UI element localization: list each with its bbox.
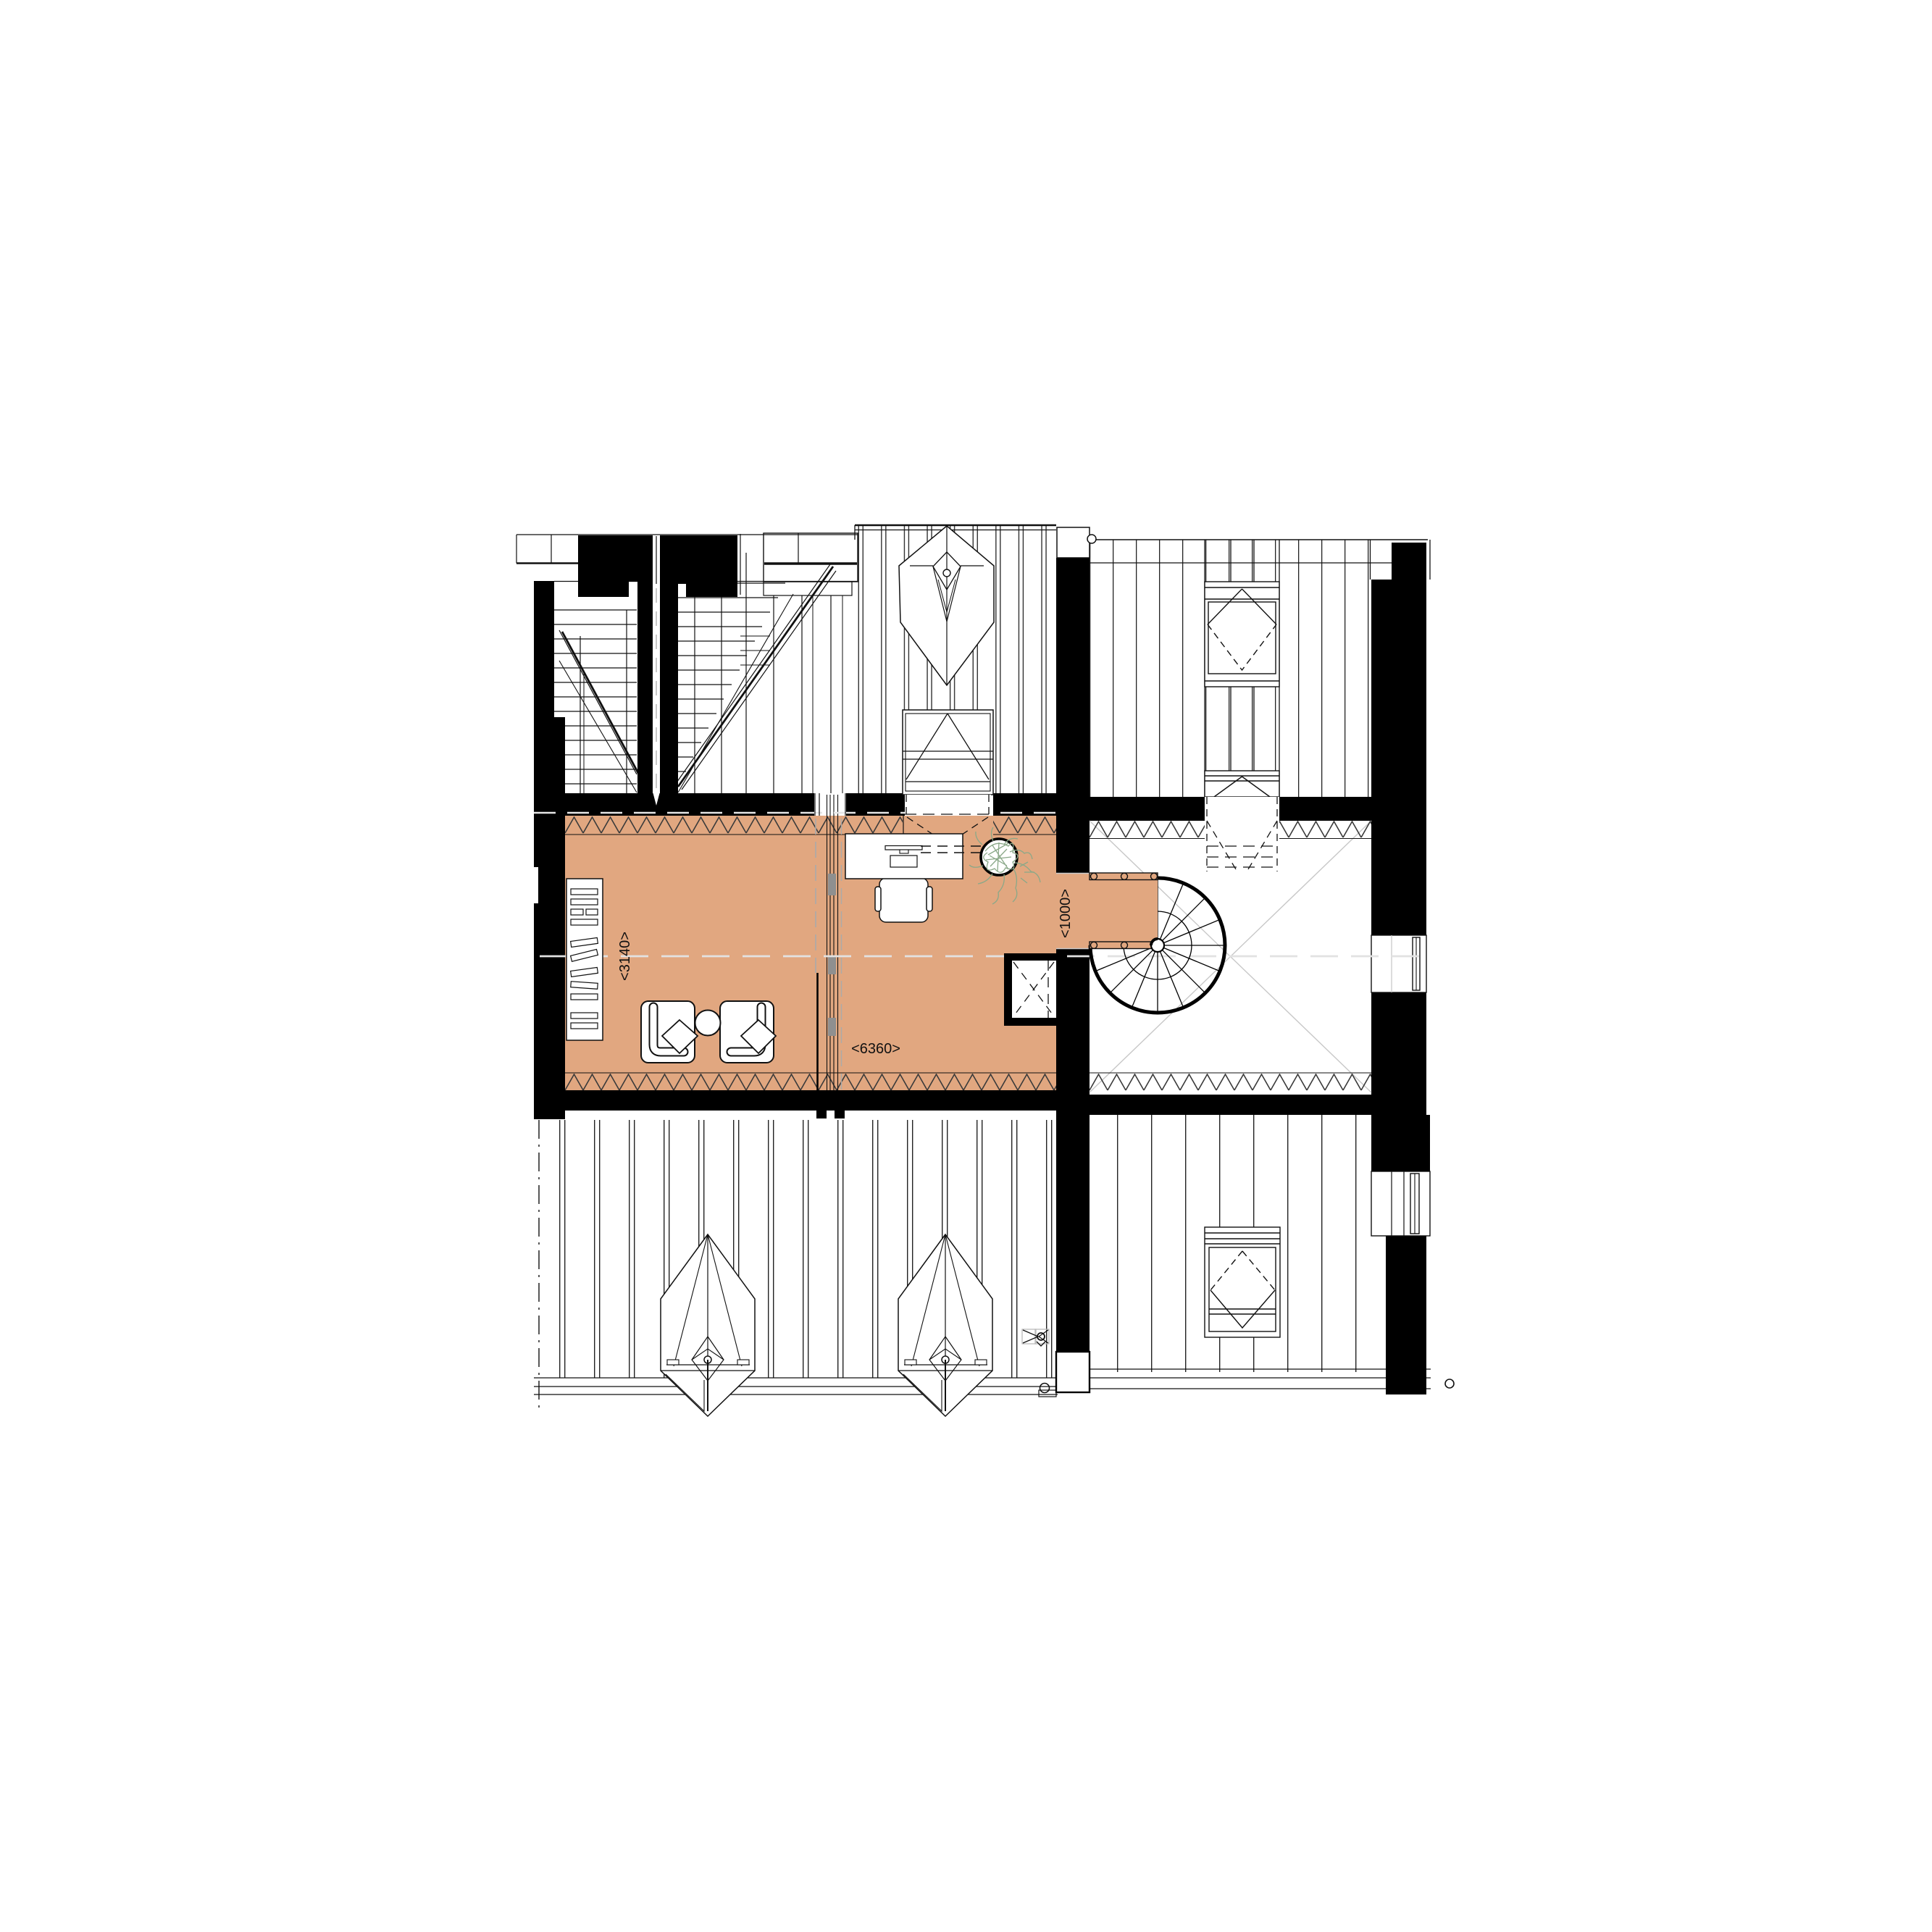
svg-text:<3140>: <3140> [617, 932, 633, 981]
svg-text:<6360>: <6360> [851, 1041, 900, 1057]
svg-text:<1000>: <1000> [1058, 889, 1074, 938]
